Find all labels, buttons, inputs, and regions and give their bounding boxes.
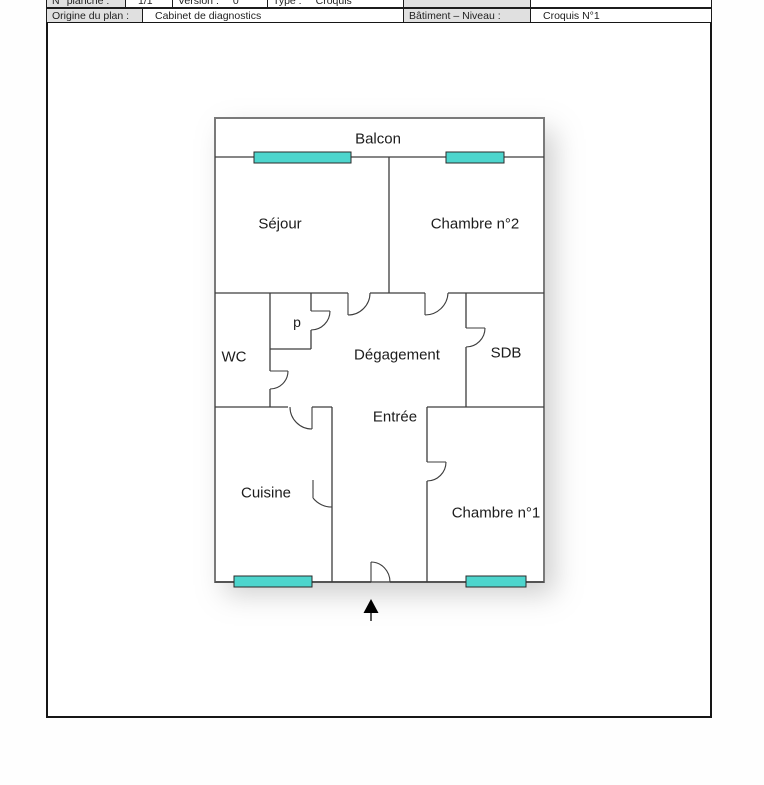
sejour-door — [348, 293, 370, 315]
room-label-placard: p — [293, 314, 301, 330]
version-label: Version : — [178, 0, 219, 7]
origin-label: Origine du plan : — [52, 10, 129, 22]
closet-door — [311, 311, 330, 330]
type-value: Croquis — [316, 0, 352, 7]
room-label-entree: Entrée — [373, 409, 417, 426]
building-label: Bâtiment – Niveau : — [409, 10, 501, 22]
sdb-door — [466, 328, 485, 347]
type-label: Type : — [273, 0, 302, 7]
origin-label-cell: Origine du plan : — [47, 9, 143, 22]
room-label-degagement: Dégagement — [354, 347, 440, 364]
version-value: 0 — [233, 0, 239, 7]
origin-value-cell: Cabinet de diagnostics — [143, 9, 404, 22]
window-sejour — [254, 152, 351, 163]
origin-value: Cabinet de diagnostics — [155, 10, 261, 22]
door-swings — [270, 293, 485, 582]
room-label-sejour: Séjour — [258, 216, 301, 233]
room-label-sdb: SDB — [491, 345, 522, 362]
chambre1-door — [427, 462, 446, 481]
chambre2-door — [425, 293, 448, 315]
planche-value: 1/1 — [138, 0, 153, 7]
window-chambre1 — [466, 576, 526, 587]
building-value-cell: Croquis N°1 — [531, 9, 711, 22]
building-value: Croquis N°1 — [543, 10, 600, 22]
wc-door — [270, 371, 288, 389]
version-cell: Version : 0 — [173, 0, 268, 7]
entrance-door — [371, 562, 390, 582]
header-row-plan-origin: Origine du plan : Cabinet de diagnostics… — [46, 8, 712, 23]
header-row-sheet-info: N° planche : 1/1 Version : 0 Type : Croq… — [46, 0, 712, 8]
planche-value-cell: 1/1 — [126, 0, 173, 7]
header-empty-gray-cell — [404, 0, 531, 7]
window-cuisine — [234, 576, 312, 587]
floor-plan-drawing — [200, 95, 570, 640]
building-label-cell: Bâtiment – Niveau : — [404, 9, 531, 22]
planche-label: N° planche : — [52, 0, 109, 7]
cuisine-inner-door — [313, 480, 332, 507]
room-label-balcon: Balcon — [355, 131, 401, 148]
header-empty-cell — [531, 0, 711, 7]
floor-plan: Balcon Séjour Chambre n°2 WC p Dégagemen… — [200, 95, 570, 640]
room-label-chambre2: Chambre n°2 — [431, 216, 520, 233]
room-label-wc: WC — [222, 349, 247, 366]
entrance-arrow-icon — [364, 599, 379, 621]
room-label-cuisine: Cuisine — [241, 485, 291, 502]
room-label-chambre1: Chambre n°1 — [452, 505, 541, 522]
cuisine-entry-door — [290, 407, 312, 429]
planche-label-cell: N° planche : — [47, 0, 126, 7]
type-cell: Type : Croquis — [268, 0, 404, 7]
window-chambre2 — [446, 152, 504, 163]
